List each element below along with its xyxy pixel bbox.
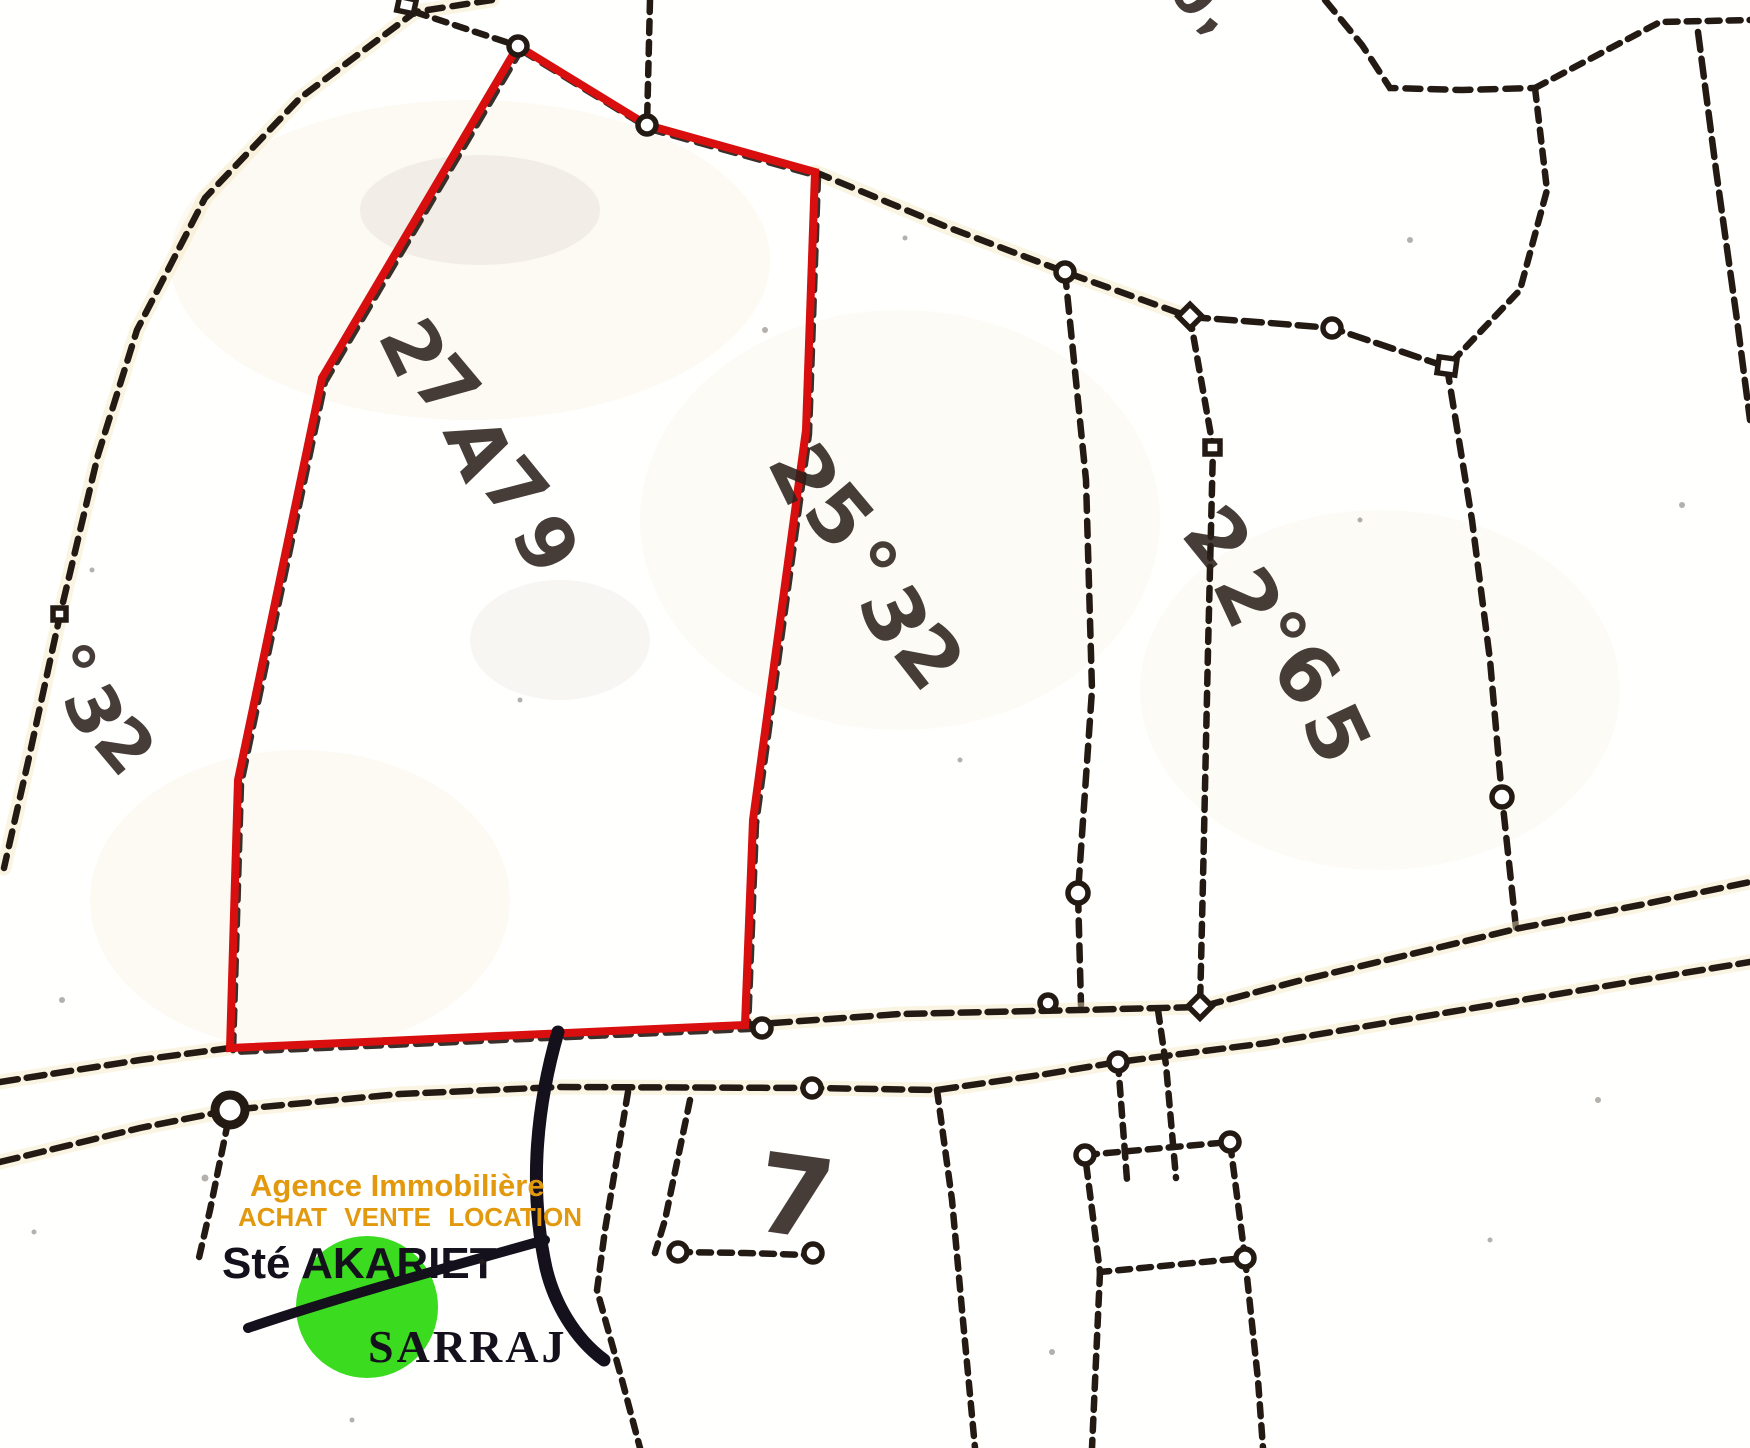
vertex-circle-marker: [1040, 995, 1056, 1011]
parcel-boundary-line: [1325, 0, 1535, 90]
vertex-circle-marker: [669, 1243, 687, 1261]
parcel-boundary-line: [597, 1092, 640, 1448]
cadastral-map-scan: 27A79 25°32 22°65 °32 0, 7 Agence Immobi…: [0, 0, 1750, 1448]
vertex-square-marker: [1205, 441, 1220, 454]
building-outline: [1085, 1142, 1245, 1272]
parcel-boundary-line: [1447, 88, 1547, 367]
vertex-circle-marker: [1323, 319, 1341, 337]
vertex-circle-marker: [753, 1019, 771, 1037]
vertex-circle-marker: [803, 1079, 821, 1097]
vertex-circle-marker: [509, 37, 527, 55]
vertex-square-marker: [53, 608, 66, 620]
handwritten-road-mark: 7: [748, 1128, 847, 1266]
vertex-circle-marker: [1068, 883, 1088, 903]
parcel-boundary-line: [1190, 317, 1447, 367]
logo-company-name: Sté AKARIET: [222, 1239, 497, 1288]
agency-logo: Agence Immobilière ACHAT VENTE LOCATION …: [222, 1032, 604, 1378]
logo-tagline-1: Agence Immobilière: [250, 1168, 545, 1203]
parcel-boundary-line: [1535, 20, 1750, 88]
vertex-circle-marker: [1221, 1133, 1239, 1151]
vertex-circle-marker: [1236, 1249, 1254, 1267]
parcel-boundary-line: [1092, 1272, 1100, 1448]
vertex-square-marker: [397, 0, 417, 14]
map-canvas: 27A79 25°32 22°65 °32 0, 7 Agence Immobi…: [0, 0, 1750, 1448]
vertex-circle-marker: [1492, 787, 1512, 807]
parcel-boundary-line: [1158, 1010, 1176, 1178]
logo-owner-name: SARRAJ: [368, 1321, 567, 1372]
parcel-boundary-line: [1118, 1062, 1127, 1180]
parcel-boundary-line: [647, 0, 650, 125]
parcel-number-top-partial: 0,: [1152, 0, 1258, 55]
parcel-boundary-line: [937, 1090, 975, 1448]
logo-tagline-2: ACHAT VENTE LOCATION: [238, 1202, 582, 1232]
parcel-boundary-line: [1698, 32, 1750, 420]
vertex-circle-marker: [638, 116, 656, 134]
vertex-circle-marker: [1076, 1146, 1094, 1164]
vertex-square-marker: [1437, 357, 1457, 375]
vertex-circle-marker: [1109, 1053, 1127, 1071]
vertex-circle-marker: [1056, 263, 1074, 281]
vertex-circle-marker-large: [215, 1095, 245, 1125]
parcel-boundary-line: [655, 1100, 690, 1253]
parcel-boundary-line: [1245, 1258, 1263, 1448]
